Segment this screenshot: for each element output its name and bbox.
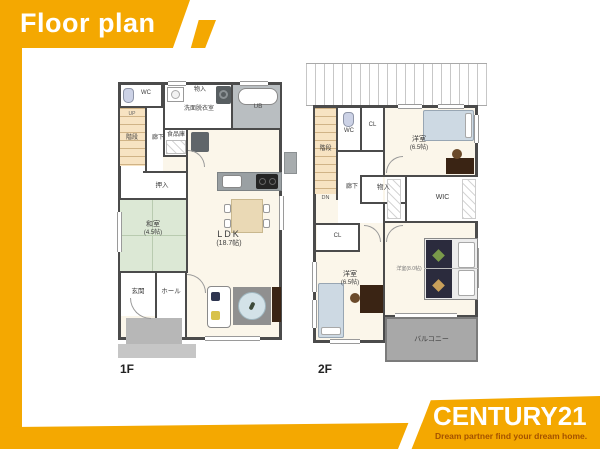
- bed-pillow-icon: [321, 327, 341, 335]
- bedroom1-name: 洋室: [398, 136, 440, 145]
- window: [474, 115, 479, 143]
- wall: [383, 221, 478, 223]
- room-label-storage: 物入: [362, 184, 405, 192]
- ldk-name: LDK: [196, 229, 262, 240]
- logo-tagline: Dream partner find your dream home.: [435, 431, 587, 441]
- wall: [315, 223, 360, 225]
- wall: [163, 82, 165, 157]
- room-label-balcony: バルコニー: [385, 336, 478, 345]
- tv-board-icon: [272, 287, 281, 322]
- frame-left-strip: [0, 0, 22, 449]
- dining-table-icon: [231, 199, 263, 233]
- window: [330, 339, 360, 344]
- wall: [163, 128, 282, 130]
- dining-chair-icon: [224, 219, 231, 228]
- wall: [336, 108, 338, 200]
- window: [312, 262, 317, 292]
- wall: [383, 105, 385, 175]
- bed-pillow-icon: [465, 113, 472, 138]
- wall: [315, 250, 360, 252]
- window: [168, 81, 186, 86]
- stove-burner-icon: [269, 178, 276, 185]
- room-label-bath: UB: [246, 103, 270, 111]
- dining-chair-icon: [263, 204, 270, 213]
- wall: [118, 271, 188, 273]
- wall: [360, 175, 478, 177]
- toilet-icon: [343, 112, 354, 127]
- wall: [118, 106, 163, 108]
- wall: [358, 223, 360, 252]
- desk-icon: [446, 158, 474, 174]
- wall: [163, 155, 188, 157]
- room-label-closet: 押入: [150, 182, 174, 190]
- room-label-washroom: 洗面脱衣室: [170, 106, 228, 114]
- room-label-wic: WIC: [407, 194, 478, 203]
- stairs-direction: UP: [124, 111, 140, 117]
- room-label-stairs: 階段: [314, 146, 337, 154]
- logo-block: CENTURY21 Dream partner find your dream …: [412, 396, 600, 449]
- desk-chair-icon: [452, 149, 462, 159]
- window: [205, 336, 260, 341]
- bedroom2-name: 洋室: [328, 271, 372, 280]
- bedroom2-size: (6.5帖): [328, 280, 372, 288]
- floor-plan-flyer: Floor plan: [0, 0, 600, 449]
- room-label-stairs: 階段: [118, 135, 146, 143]
- wall: [338, 150, 385, 152]
- bedroom1-size: (6.5帖): [398, 145, 440, 153]
- window: [398, 104, 422, 109]
- desk-icon: [360, 285, 383, 313]
- room-label-pantry: 食品庫: [163, 132, 189, 140]
- room-label-wc: WC: [338, 128, 360, 136]
- desk-chair-icon: [350, 293, 360, 303]
- floor-label-1f: 1F: [120, 362, 150, 377]
- vanity-bowl-icon: [171, 90, 180, 99]
- room-label-storage: 物入: [188, 87, 212, 95]
- page-title: Floor plan: [20, 8, 156, 39]
- 2f-roof-hatch: [306, 63, 487, 106]
- room-label-wc: WC: [136, 90, 156, 98]
- dining-chair-icon: [224, 204, 231, 213]
- bed-pillow-icon: [458, 242, 475, 268]
- 1f-porch-apron: [118, 344, 196, 358]
- room-label-tatami: 和室 (4.5帖): [122, 221, 184, 237]
- wall: [143, 171, 188, 173]
- tatami-size: (4.5帖): [122, 230, 184, 238]
- stairs-direction: DN: [314, 195, 337, 202]
- room-label-closet2: CL: [317, 233, 358, 241]
- kitchen-sink-icon: [222, 175, 242, 188]
- dining-chair-icon: [263, 219, 270, 228]
- room-label-bedroom1: 洋室 (6.5帖): [398, 136, 440, 152]
- double-bed-split-line: [424, 268, 478, 269]
- window: [279, 196, 284, 230]
- room-label-hall: ホール: [156, 288, 186, 296]
- sofa-cushion-icon: [211, 311, 220, 320]
- bed-pillow-icon: [458, 270, 475, 296]
- title-banner-tail: [180, 20, 216, 48]
- floor-label-2f: 2F: [318, 362, 348, 377]
- wall: [118, 198, 188, 200]
- wall: [231, 82, 233, 128]
- washing-machine-drum-icon: [219, 90, 228, 99]
- stove-burner-icon: [259, 178, 266, 185]
- ac-unit-icon: [284, 152, 297, 174]
- window: [312, 300, 317, 328]
- tatami-name: 和室: [122, 221, 184, 230]
- refrigerator-icon: [191, 132, 209, 152]
- room-label-hallway: 廊下: [340, 184, 364, 192]
- room-label-master: 洋室(8.0帖): [392, 266, 426, 272]
- room-label-closet: CL: [362, 122, 383, 130]
- window: [438, 104, 464, 109]
- wall: [360, 108, 362, 152]
- sofa-cushion-icon: [211, 292, 220, 301]
- room-label-entrance: 玄関: [122, 288, 154, 296]
- toilet-icon: [123, 88, 134, 103]
- room-label-ldk: LDK (18.7帖): [196, 229, 262, 249]
- logo-brand: CENTURY21: [433, 401, 587, 432]
- window: [240, 81, 268, 86]
- ldk-size: (18.7帖): [196, 240, 262, 249]
- room-label-bedroom2: 洋室 (6.5帖): [328, 271, 372, 287]
